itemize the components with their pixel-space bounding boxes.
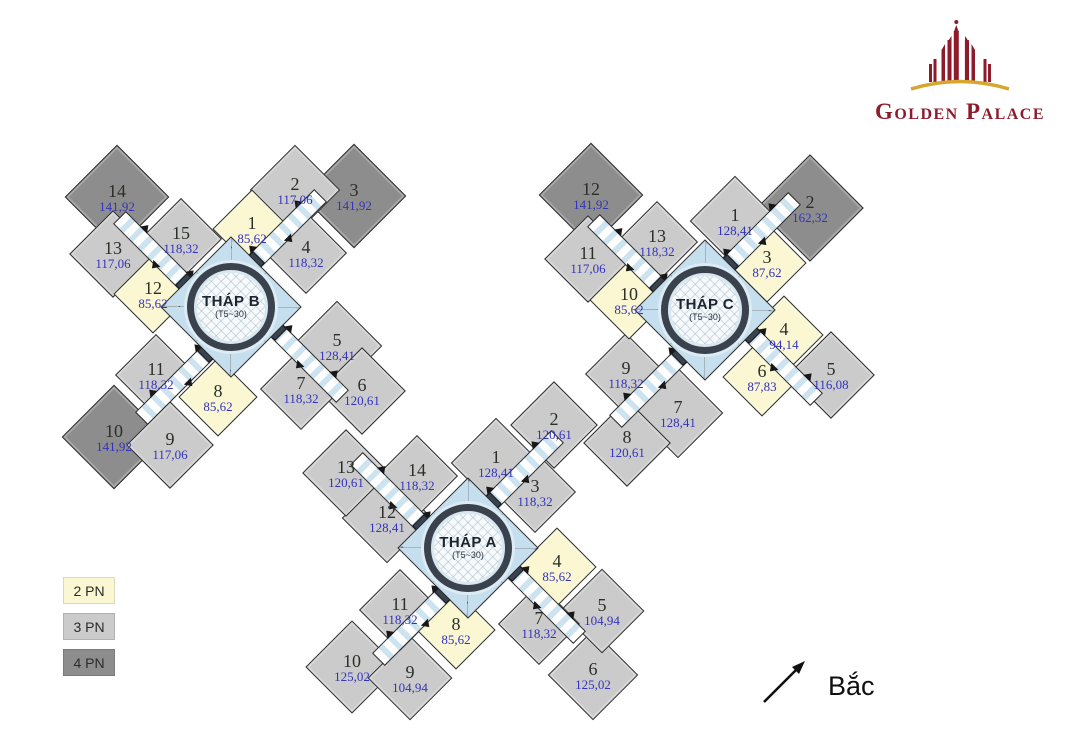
north-arrow-icon [756,650,814,708]
tower-B-floors: (T5~30) [215,310,247,320]
tower-C-core: THÁP C(T5~30) [661,266,749,354]
tower-B-core: THÁP B(T5~30) [187,263,275,351]
tower-C-floors: (T5~30) [689,313,721,323]
legend-item-3pn: 3 PN [63,613,115,640]
brand-name: Golden Palace [848,99,1072,125]
floor-plan-page: THÁP B(T5~30)185,622117,063141,924118,32… [0,0,1080,748]
tower-B-title: THÁP B [202,294,260,310]
legend: 2 PN3 PN4 PN [63,577,115,685]
legend-item-2pn: 2 PN [63,577,115,604]
brand-logo: Golden Palace [848,18,1072,125]
tower-A-core: THÁP A(T5~30) [424,504,512,592]
tower-A-floors: (T5~30) [452,551,484,561]
compass: Bắc [756,650,875,708]
compass-label: Bắc [828,671,875,702]
tower-C-title: THÁP C [676,297,734,313]
tower-A-title: THÁP A [439,535,496,551]
legend-item-4pn: 4 PN [63,649,115,676]
golden-palace-building-icon [885,18,1035,96]
